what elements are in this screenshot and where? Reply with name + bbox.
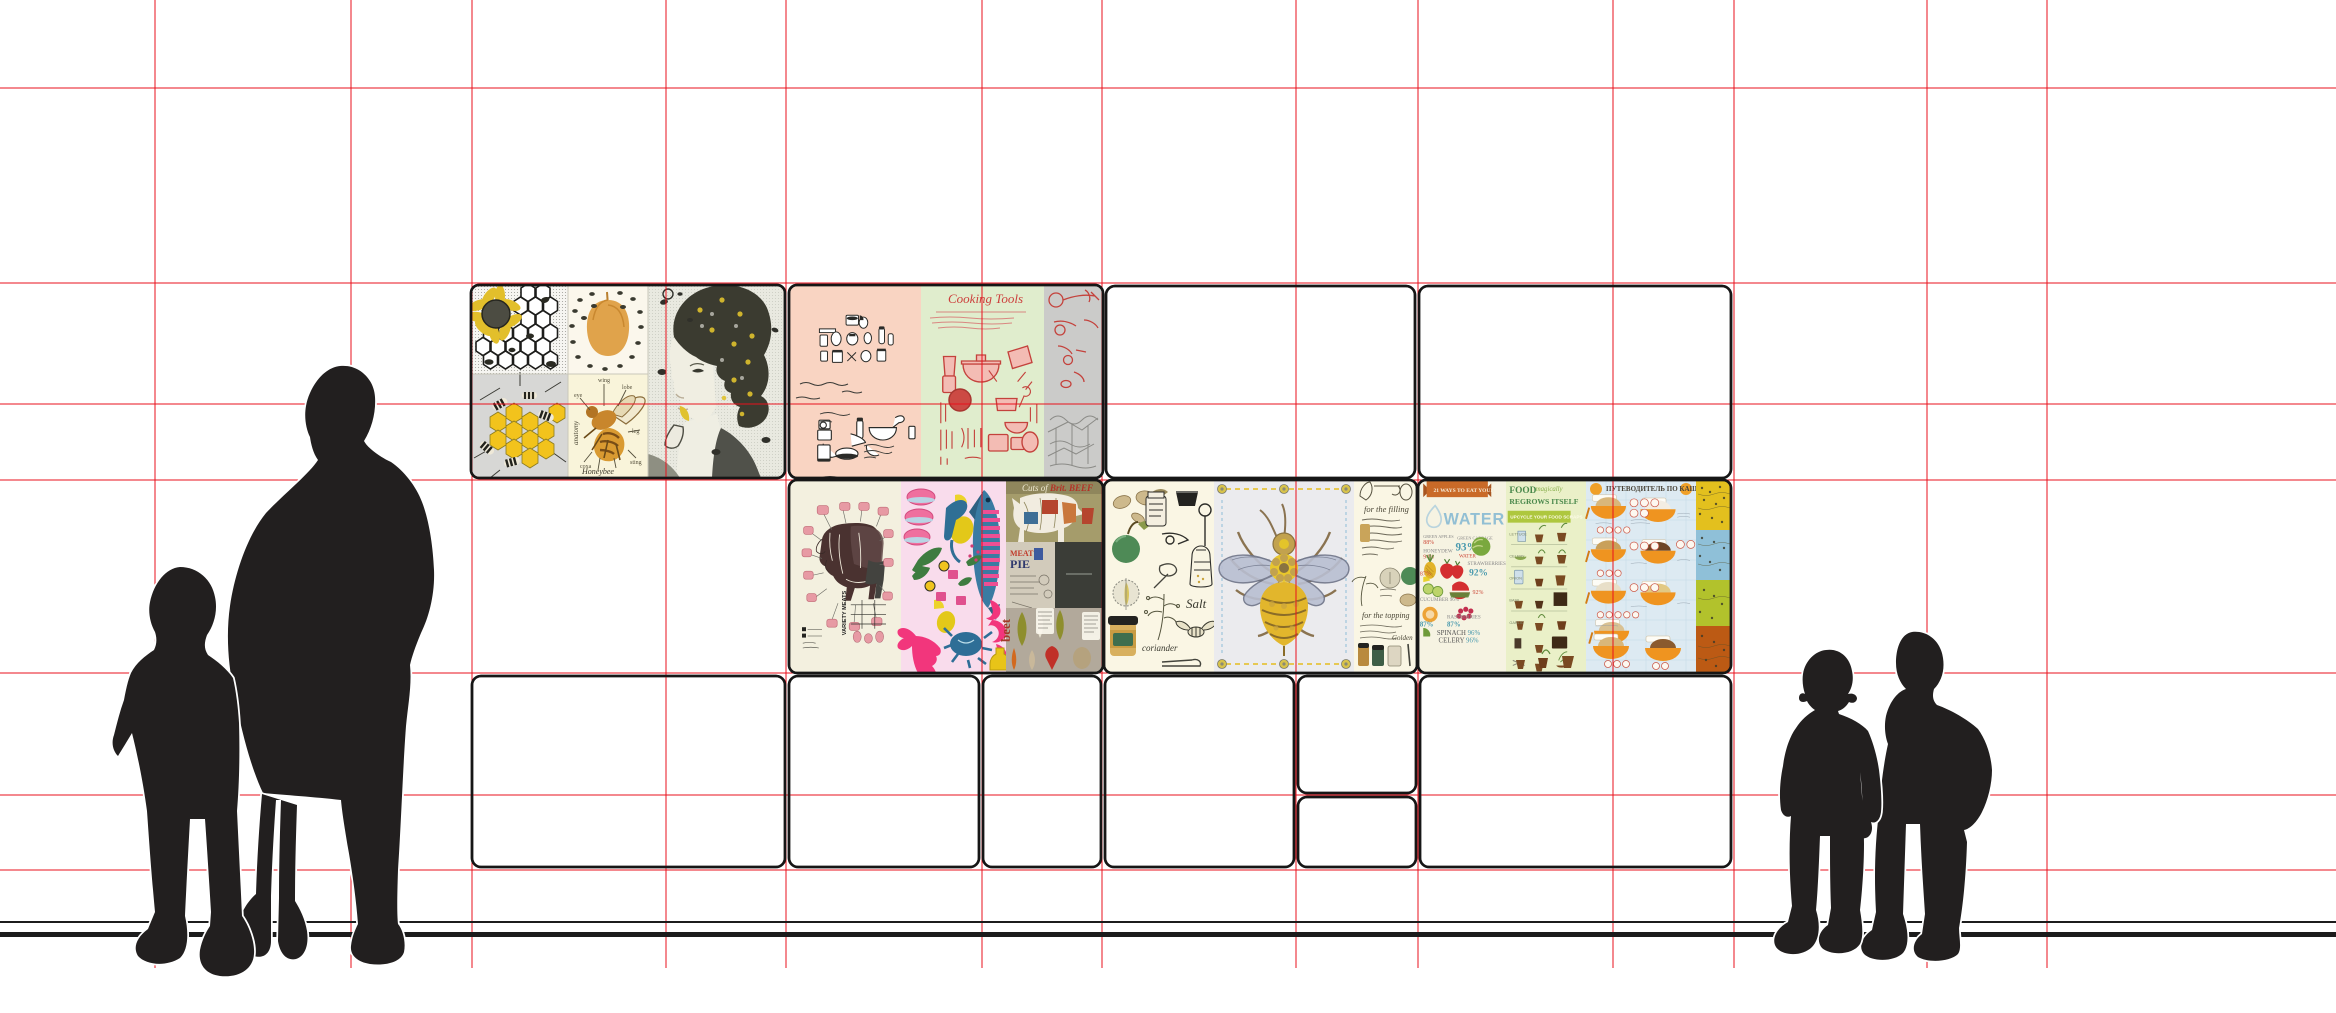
svg-text:Cuts of Brit. BEEF: Cuts of Brit. BEEF: [1022, 483, 1093, 493]
svg-text:21 WAYS TO EAT YOUR: 21 WAYS TO EAT YOUR: [1433, 488, 1495, 494]
svg-text:wing: wing: [598, 378, 610, 384]
svg-text:88%: 88%: [1423, 540, 1434, 546]
svg-text:for the filling: for the filling: [1364, 504, 1409, 514]
svg-text:Cooking Tools: Cooking Tools: [948, 291, 1023, 306]
svg-text:BASIL: BASIL: [1509, 599, 1520, 603]
svg-text:VARIETY MEATS: VARIETY MEATS: [842, 590, 848, 635]
svg-text:ONION: ONION: [1509, 577, 1522, 581]
svg-text:eye: eye: [574, 393, 583, 399]
svg-text:lobe: lobe: [622, 385, 633, 391]
svg-text:WATER: WATER: [1459, 553, 1477, 559]
svg-text:LETTUCE: LETTUCE: [1509, 532, 1527, 536]
svg-text:beet: beet: [998, 618, 1013, 642]
svg-text:GARLIC: GARLIC: [1509, 621, 1523, 625]
svg-text:magically: magically: [1536, 486, 1564, 493]
svg-text:87%: 87%: [1420, 571, 1431, 577]
svg-text:WATER: WATER: [1444, 510, 1505, 528]
svg-text:SPINACH 96%: SPINACH 96%: [1437, 630, 1481, 637]
svg-text:leg: leg: [632, 429, 639, 435]
svg-text:for the topping: for the topping: [1362, 611, 1410, 620]
svg-text:Honeybee: Honeybee: [581, 467, 614, 476]
svg-text:Salt: Salt: [1186, 596, 1207, 611]
svg-text:GREEN APPLES: GREEN APPLES: [1423, 534, 1454, 539]
svg-text:CUCUMBER 96%: CUCUMBER 96%: [1420, 597, 1460, 603]
svg-text:RASPBERRIES: RASPBERRIES: [1447, 615, 1481, 621]
svg-text:PIE: PIE: [1010, 557, 1030, 571]
svg-text:CELERY 96%: CELERY 96%: [1439, 638, 1479, 645]
svg-text:sting: sting: [630, 460, 642, 466]
svg-text:87%: 87%: [1447, 621, 1461, 628]
svg-text:ПУТЕВОДИТЕЛЬ ПО КАШАМ: ПУТЕВОДИТЕЛЬ ПО КАШАМ: [1606, 485, 1709, 493]
svg-text:CELERY: CELERY: [1509, 555, 1525, 559]
svg-text:HONEYDEW: HONEYDEW: [1423, 548, 1453, 554]
svg-text:REGROWS ITSELF: REGROWS ITSELF: [1509, 497, 1578, 506]
svg-text:92%: 92%: [1473, 590, 1484, 596]
svg-text:UPCYCLE YOUR FOOD SCRAPS: UPCYCLE YOUR FOOD SCRAPS: [1510, 514, 1582, 519]
svg-text:FOOD: FOOD: [1509, 486, 1536, 496]
svg-text:anatomy: anatomy: [572, 420, 580, 445]
svg-text:87%: 87%: [1420, 621, 1434, 628]
svg-text:Golden: Golden: [1392, 634, 1413, 642]
svg-text:STRAWBERRIES: STRAWBERRIES: [1467, 561, 1506, 567]
svg-text:92%: 92%: [1469, 568, 1488, 578]
svg-text:coriander: coriander: [1142, 643, 1178, 653]
